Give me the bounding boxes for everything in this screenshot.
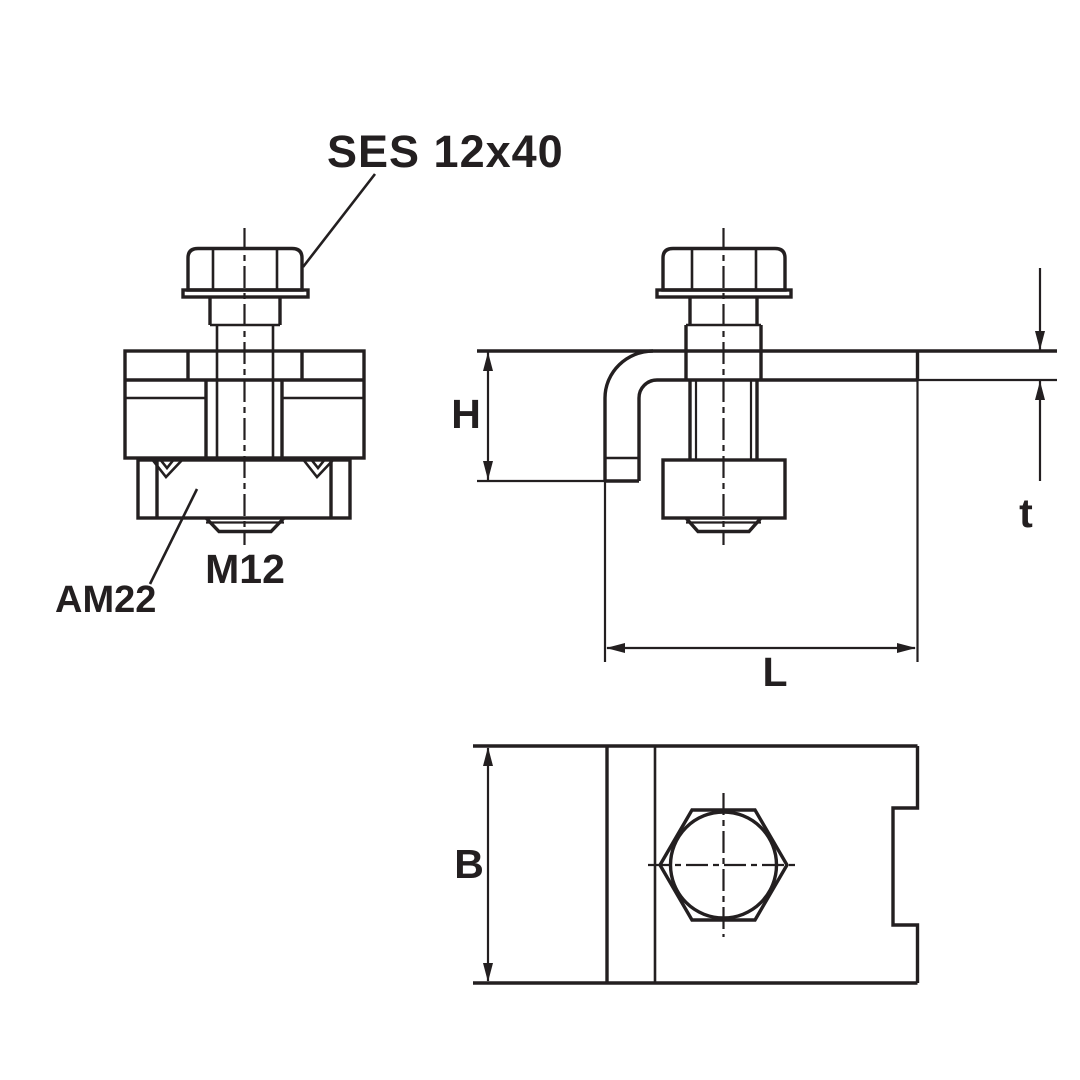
t-arrow-down: [1035, 331, 1045, 350]
technical-drawing-page: H t L B SES 12x40: [0, 0, 1080, 1080]
top-view-right-edge-notch: [893, 746, 918, 983]
dimension-t: t: [1019, 268, 1045, 536]
dimension-B: B: [454, 747, 493, 982]
nut-callout-label: AM22: [55, 579, 156, 621]
b-arrow-down: [483, 963, 493, 982]
dimension-H: H: [451, 352, 605, 481]
thread-size-label: M12: [205, 546, 285, 592]
side-flange: [605, 398, 639, 481]
front-thread-lines: [217, 351, 273, 460]
front-view: [125, 228, 364, 545]
bolt-callout-label: SES 12x40: [327, 126, 564, 177]
side-view: [477, 228, 1057, 545]
h-arrow-up: [483, 352, 493, 371]
side-bend-outer-radius: [605, 351, 653, 398]
l-arrow-right: [897, 643, 916, 653]
beam-clamp-drawing: H t L B SES 12x40: [0, 0, 1080, 1080]
dimension-L: L: [605, 380, 918, 695]
t-dimension-label: t: [1019, 490, 1033, 536]
h-arrow-down: [483, 461, 493, 480]
b-dimension-label: B: [454, 841, 484, 887]
b-arrow-up: [483, 747, 493, 766]
top-view: [473, 746, 918, 983]
t-arrow-up: [1035, 381, 1045, 400]
l-arrow-left: [606, 643, 625, 653]
side-bend-inner-radius: [639, 380, 657, 398]
h-dimension-label: H: [451, 391, 481, 437]
front-clamp-body: [125, 351, 364, 458]
l-dimension-label: L: [762, 649, 787, 695]
bolt-callout-leader: [303, 174, 375, 267]
